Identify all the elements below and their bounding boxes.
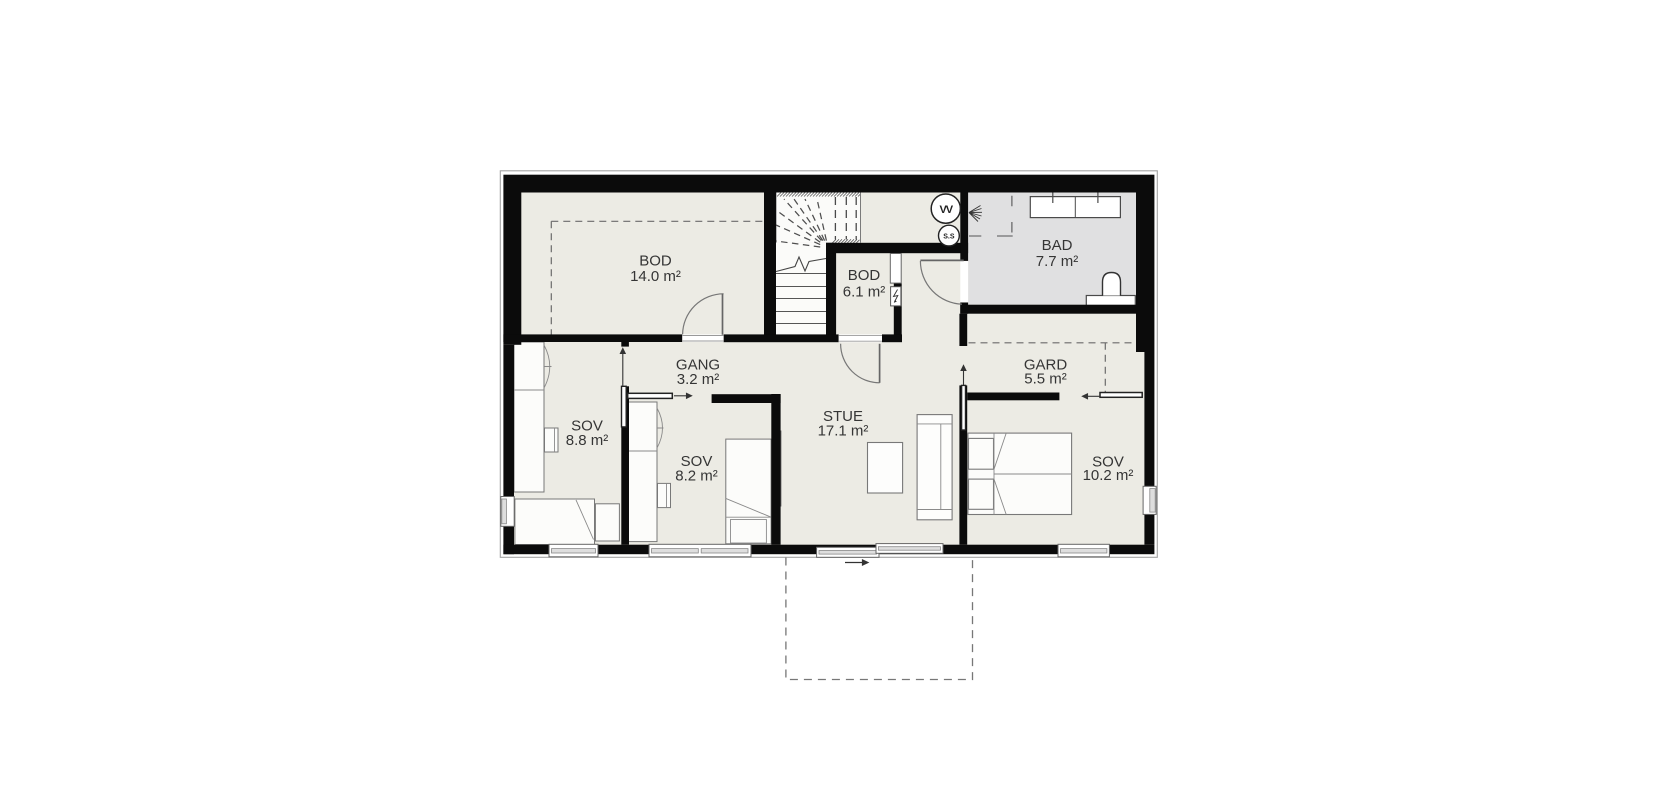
svg-text:8.8 m²: 8.8 m² [566,432,609,449]
svg-text:3.2 m²: 3.2 m² [677,371,720,388]
svg-text:S.S: S.S [943,233,955,240]
svg-text:VV: VV [939,204,953,216]
svg-text:17.1 m²: 17.1 m² [818,423,869,440]
svg-text:6.1 m²: 6.1 m² [843,284,886,301]
svg-text:8.2 m²: 8.2 m² [675,468,718,485]
svg-text:10.2 m²: 10.2 m² [1083,467,1134,484]
svg-text:7.7 m²: 7.7 m² [1036,253,1079,270]
svg-text:BOD: BOD [639,253,672,270]
svg-text:5.5 m²: 5.5 m² [1024,371,1067,388]
svg-text:BOD: BOD [848,267,881,284]
svg-text:BAD: BAD [1042,237,1073,254]
svg-text:14.0 m²: 14.0 m² [630,268,681,285]
